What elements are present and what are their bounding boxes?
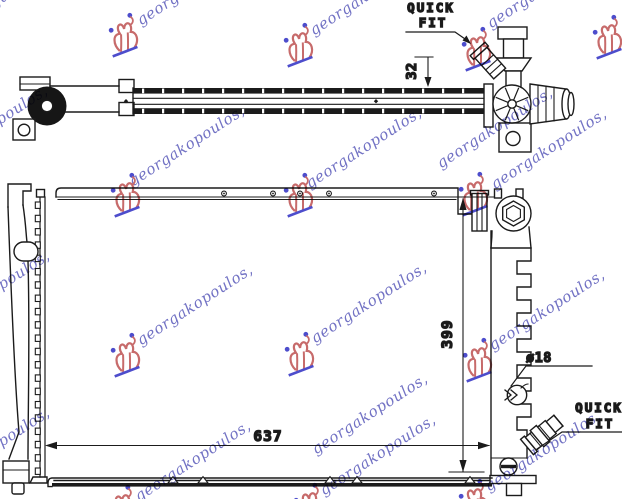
front-view: 399 637 ø18 QUICK FIT: [3, 184, 622, 496]
pivot-hole: [41, 100, 53, 112]
right-tank-peg: [507, 484, 522, 496]
bracket-hole: [506, 132, 520, 146]
top-view: 32 QUICK FIT: [13, 0, 574, 152]
dimension-637-label: 637: [253, 429, 282, 445]
quick-fit-top-line2: FIT: [419, 15, 448, 30]
filler-port: [471, 189, 532, 248]
right-tank-ribs: [491, 248, 531, 458]
quick-fit-bottom-line2: FIT: [586, 416, 615, 431]
left-tank-side-profile: [3, 184, 38, 494]
top-view-right-end: [470, 27, 574, 152]
filler-cap: [498, 27, 527, 39]
quick-fit-bottom-line1: QUICK: [575, 400, 622, 415]
leader-arrow: [463, 36, 472, 45]
quick-fit-top-line1: QUICK: [407, 0, 455, 15]
radiator-technical-drawing: 32 QUICK FIT: [0, 0, 622, 499]
serration-teeth: [35, 202, 40, 474]
dimension-32: 32: [404, 57, 433, 87]
fan-wheel: [493, 85, 531, 123]
dimension-399-label: 399: [440, 319, 456, 348]
core-bottom-band: [133, 108, 484, 114]
core-marks: [124, 99, 378, 103]
top-view-left-bracket: [13, 77, 134, 140]
dimension-32-label: 32: [404, 62, 420, 79]
left-tank-serrated-edge: [35, 190, 45, 478]
right-tank-flange: [490, 476, 536, 484]
inlet-hole: [505, 384, 528, 405]
mounting-peg: [12, 483, 24, 494]
hole-diameter-label: ø18: [526, 350, 552, 366]
top-tank-holes: [222, 191, 437, 196]
drawing-canvas: 32 QUICK FIT: [0, 0, 622, 499]
dimension-399: 399: [440, 197, 494, 472]
bottom-tank: [30, 477, 492, 487]
hose-outlet: [530, 84, 566, 124]
quick-fit-top-callout: QUICK FIT: [406, 0, 471, 44]
side-hose-stub: [14, 242, 38, 261]
dimension-637: 637: [45, 429, 490, 449]
top-tank-outline: [56, 188, 472, 214]
hole-diameter-callout: ø18: [511, 350, 592, 386]
core-mid-lines: [133, 98, 484, 104]
bracket-hole: [18, 124, 30, 136]
core-top-band: [133, 88, 484, 94]
